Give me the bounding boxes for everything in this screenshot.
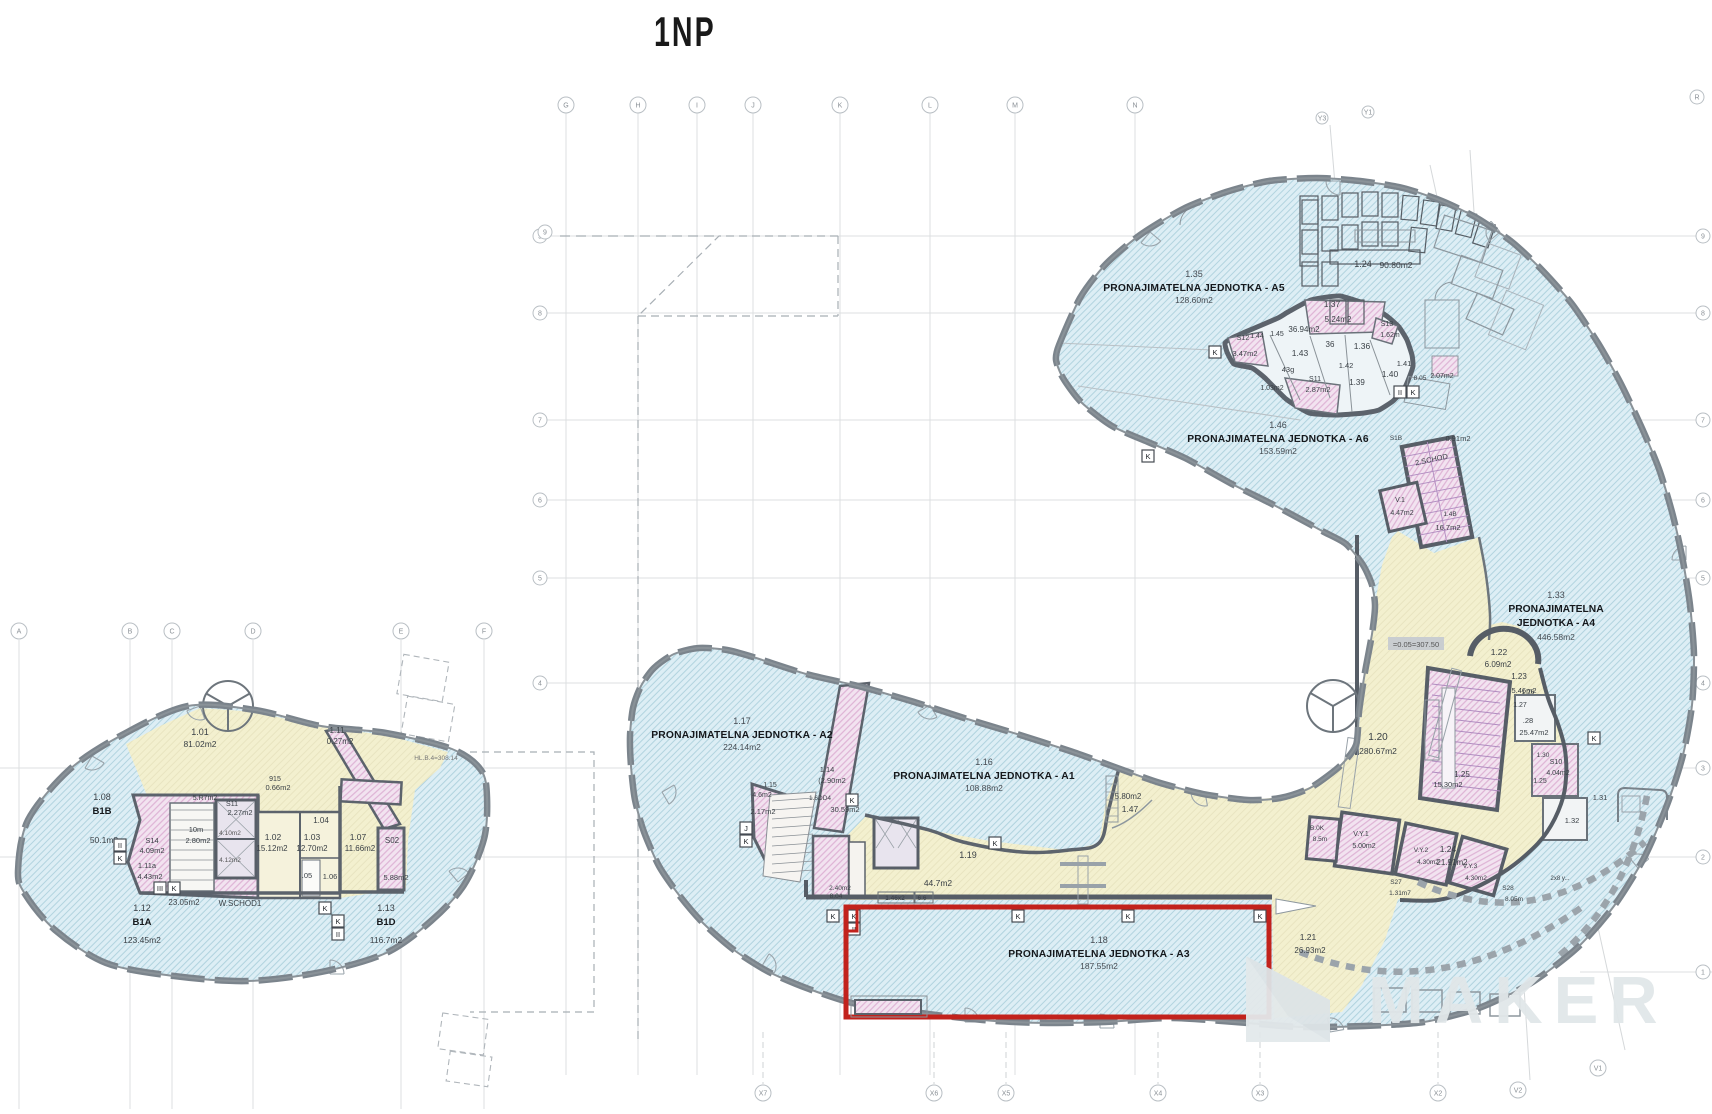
svg-text:1.25: 1.25	[1533, 778, 1547, 785]
svg-text:PRONAJIMATELNA JEDNOTKA - A5: PRONAJIMATELNA JEDNOTKA - A5	[1103, 283, 1285, 294]
svg-text:J: J	[744, 824, 748, 833]
svg-text:X4: X4	[1154, 1091, 1163, 1098]
svg-text:PRONAJIMATELNA JEDNOTKA - A1: PRONAJIMATELNA JEDNOTKA - A1	[893, 771, 1075, 782]
svg-text:4.30m2: 4.30m2	[1417, 859, 1439, 866]
svg-text:4.10m2: 4.10m2	[219, 830, 241, 837]
svg-text:1.06: 1.06	[323, 872, 338, 881]
svg-text:II: II	[336, 930, 340, 939]
svg-text:S28: S28	[1502, 885, 1514, 892]
svg-text:1.32: 1.32	[1565, 816, 1580, 825]
svg-text:5.88m2: 5.88m2	[383, 873, 408, 882]
svg-text:6.09m2: 6.09m2	[1485, 660, 1512, 669]
svg-text:1NP: 1NP	[654, 7, 716, 55]
svg-text:8: 8	[538, 311, 542, 318]
svg-text:1.22: 1.22	[1491, 647, 1508, 657]
svg-text:1: 1	[1701, 970, 1705, 977]
svg-text:1.62m: 1.62m	[1380, 332, 1400, 339]
svg-text:1.31: 1.31	[1593, 793, 1608, 802]
svg-text:.28: .28	[1523, 716, 1533, 725]
svg-text:1.08: 1.08	[93, 792, 111, 802]
svg-text:S13: S13	[1381, 321, 1394, 328]
svg-text:W.SCHOD1: W.SCHOD1	[219, 899, 262, 908]
svg-text:K: K	[1410, 388, 1415, 397]
svg-text:123.45m2: 123.45m2	[123, 935, 161, 945]
svg-text:Y3: Y3	[1318, 116, 1327, 123]
svg-text:1.23: 1.23	[1511, 672, 1527, 681]
svg-text:8: 8	[1701, 311, 1705, 318]
svg-text:1.31m7: 1.31m7	[1389, 890, 1411, 897]
svg-text:2.07m2: 2.07m2	[1430, 373, 1453, 380]
svg-text:1.20: 1.20	[1368, 732, 1388, 743]
svg-text:5.80m2: 5.80m2	[1115, 792, 1142, 801]
svg-text:1.07: 1.07	[350, 832, 367, 842]
svg-text:2.87m2: 2.87m2	[1305, 385, 1330, 394]
svg-text:1.46: 1.46	[1269, 420, 1287, 430]
svg-text:R: R	[1694, 95, 1699, 102]
svg-text:1.37: 1.37	[1324, 299, 1341, 309]
svg-text:1.02: 1.02	[265, 832, 282, 842]
svg-text:0.91m2: 0.91m2	[1445, 434, 1470, 443]
svg-text:4.43m2: 4.43m2	[137, 872, 162, 881]
svg-text:1.24: 1.24	[1354, 259, 1372, 269]
svg-text:280.67m2: 280.67m2	[1359, 746, 1397, 756]
svg-text:MAKER: MAKER	[1368, 963, 1669, 1038]
svg-text:11.66m2: 11.66m2	[345, 844, 376, 853]
svg-text:7: 7	[1701, 418, 1705, 425]
svg-text:0.66m2: 0.66m2	[265, 783, 290, 792]
svg-text:90.80m2: 90.80m2	[1379, 260, 1412, 270]
svg-text:II: II	[1398, 388, 1402, 397]
svg-text:23.05m2: 23.05m2	[168, 898, 200, 907]
svg-text:B1A: B1A	[132, 917, 151, 928]
svg-text:S12: S12	[1237, 335, 1250, 342]
svg-text:1.41: 1.41	[1397, 359, 1412, 368]
svg-text:E: E	[399, 629, 404, 636]
svg-text:1.35: 1.35	[1185, 269, 1203, 279]
svg-text:PRONAJIMATELNA JEDNOTKA - A2: PRONAJIMATELNA JEDNOTKA - A2	[651, 730, 833, 741]
svg-text:G: G	[563, 103, 568, 110]
svg-text:26.93m2: 26.93m2	[1294, 946, 1326, 955]
svg-text:I: I	[696, 103, 698, 110]
svg-text:K: K	[1145, 452, 1150, 461]
svg-text:S11: S11	[226, 801, 238, 808]
svg-text:A: A	[17, 629, 22, 636]
svg-text:5: 5	[1701, 576, 1705, 583]
svg-text:1.11: 1.11	[330, 726, 346, 735]
svg-text:1.46x2: 1.46x2	[885, 895, 905, 902]
svg-text:4.04m2: 4.04m2	[1546, 770, 1569, 777]
svg-text:6: 6	[538, 498, 542, 505]
svg-text:4.09m2: 4.09m2	[139, 846, 164, 855]
svg-text:D: D	[250, 629, 255, 636]
svg-text:K: K	[830, 912, 835, 921]
svg-text:X7: X7	[759, 1091, 768, 1098]
svg-text:1.03: 1.03	[304, 832, 321, 842]
svg-text:153.59m2: 153.59m2	[1259, 446, 1297, 456]
svg-text:108.88m2: 108.88m2	[965, 783, 1003, 793]
svg-text:187.55m2: 187.55m2	[1080, 961, 1118, 971]
svg-text:PRONAJIMATELNA JEDNOTKA - A3: PRONAJIMATELNA JEDNOTKA - A3	[1008, 949, 1190, 960]
svg-text:K: K	[335, 917, 340, 926]
svg-text:1.26: 1.26	[1522, 689, 1535, 696]
svg-text:2.80m2: 2.80m2	[185, 836, 210, 845]
svg-text:II: II	[118, 841, 122, 850]
svg-text:III: III	[157, 884, 163, 893]
svg-text:1.21: 1.21	[1300, 932, 1317, 942]
svg-text:0.27m2: 0.27m2	[327, 737, 354, 746]
svg-text:3.47m2: 3.47m2	[1232, 349, 1257, 358]
svg-text:1.13: 1.13	[377, 903, 395, 913]
svg-text:K: K	[1212, 348, 1217, 357]
svg-text:V1: V1	[1594, 1066, 1603, 1073]
svg-text:V.1: V.1	[1395, 497, 1405, 504]
svg-text:V.Y.3: V.Y.3	[1463, 863, 1478, 870]
svg-text:H: H	[635, 103, 640, 110]
svg-text:8.05: 8.05	[1414, 375, 1427, 382]
svg-text:2: 2	[1701, 855, 1705, 862]
svg-text:5.00m2: 5.00m2	[1352, 843, 1375, 850]
svg-text:6.6: 6.6	[917, 895, 926, 902]
svg-text:3: 3	[1701, 766, 1705, 773]
svg-text:B: B	[128, 629, 133, 636]
svg-text:1.45: 1.45	[1270, 331, 1284, 338]
svg-text:116.7m2: 116.7m2	[370, 935, 403, 945]
svg-text:4.12m2: 4.12m2	[219, 857, 241, 864]
svg-text:5.24m2: 5.24m2	[1325, 315, 1352, 324]
svg-text:V.Y.2: V.Y.2	[1414, 847, 1429, 854]
svg-text:1.14: 1.14	[820, 765, 835, 774]
svg-text:25.47m2: 25.47m2	[1519, 728, 1548, 737]
svg-text:1.43: 1.43	[1292, 348, 1309, 358]
svg-text:1.12: 1.12	[133, 903, 151, 913]
svg-text:V2: V2	[1514, 1088, 1523, 1095]
svg-text:8.04: 8.04	[830, 893, 843, 900]
svg-text:JEDNOTKA - A4: JEDNOTKA - A4	[1517, 618, 1595, 629]
svg-text:1.36: 1.36	[1354, 341, 1371, 351]
svg-text:F: F	[482, 629, 486, 636]
svg-text:1.42: 1.42	[1339, 361, 1354, 370]
svg-text:36: 36	[1326, 340, 1335, 349]
svg-text:44.7m2: 44.7m2	[924, 878, 953, 888]
svg-text:K: K	[838, 103, 843, 110]
svg-text:K: K	[849, 796, 854, 805]
svg-text:1.16: 1.16	[975, 757, 993, 767]
svg-text:1.33: 1.33	[1547, 590, 1565, 600]
svg-text:K: K	[322, 904, 327, 913]
svg-text:Y1: Y1	[1364, 110, 1373, 117]
svg-text:(2.90m2: (2.90m2	[818, 776, 846, 785]
svg-text:J: J	[751, 103, 755, 110]
svg-text:C: C	[169, 629, 174, 636]
svg-text:5.R7m2: 5.R7m2	[193, 795, 218, 802]
svg-text:K: K	[1591, 734, 1596, 743]
svg-text:K: K	[1257, 912, 1262, 921]
svg-text:1.03m2: 1.03m2	[1260, 385, 1283, 392]
svg-text:X2: X2	[1434, 1091, 1443, 1098]
svg-text:S11: S11	[1309, 376, 1321, 383]
svg-text:915: 915	[269, 776, 281, 783]
svg-text:4.47m2: 4.47m2	[1390, 510, 1413, 517]
svg-text:K: K	[1015, 912, 1020, 921]
svg-text:15.30m2: 15.30m2	[1433, 780, 1462, 789]
svg-text:1.04: 1.04	[313, 816, 329, 825]
svg-text:1.6DD4: 1.6DD4	[809, 795, 831, 802]
svg-text:1.44: 1.44	[1250, 333, 1264, 340]
svg-text:B1B: B1B	[92, 806, 111, 817]
svg-text:36.94m2: 36.94m2	[1288, 325, 1320, 334]
svg-text:446.58m2: 446.58m2	[1537, 632, 1575, 642]
svg-text:1.39: 1.39	[1349, 378, 1365, 387]
svg-text:1.4B: 1.4B	[1443, 511, 1456, 518]
svg-text:PRONAJIMATELNA JEDNOTKA - A6: PRONAJIMATELNA JEDNOTKA - A6	[1187, 434, 1369, 445]
svg-text:2x8 y...: 2x8 y...	[1551, 876, 1570, 882]
svg-text:1.17: 1.17	[733, 716, 751, 726]
svg-text:8.5m: 8.5m	[1313, 836, 1327, 843]
svg-text:9: 9	[543, 230, 547, 237]
svg-text:S1B: S1B	[1390, 435, 1402, 442]
svg-text:7: 7	[538, 418, 542, 425]
svg-text:S02: S02	[385, 836, 400, 845]
svg-text:X5: X5	[1002, 1091, 1011, 1098]
svg-text:V.Y.1: V.Y.1	[1353, 831, 1369, 838]
svg-text:1.15: 1.15	[763, 782, 777, 789]
svg-text:1.30: 1.30	[1537, 752, 1550, 759]
svg-text:8.05m: 8.05m	[1505, 896, 1523, 903]
svg-text:2.40m2: 2.40m2	[829, 885, 851, 892]
svg-text:X3: X3	[1256, 1091, 1265, 1098]
svg-text:1.11a: 1.11a	[138, 861, 157, 870]
svg-text:81.02m2: 81.02m2	[183, 739, 216, 749]
svg-text:1.01: 1.01	[191, 727, 209, 737]
svg-text:1.19: 1.19	[959, 850, 977, 860]
svg-text:L: L	[928, 103, 932, 110]
svg-text:12.70m2: 12.70m2	[296, 844, 328, 853]
svg-text:S14: S14	[145, 836, 158, 845]
svg-text:16.7m2: 16.7m2	[1435, 523, 1460, 532]
svg-text:4.30m2: 4.30m2	[1465, 875, 1487, 882]
svg-text:.05: .05	[302, 871, 312, 880]
svg-text:=0.05=307.50: =0.05=307.50	[1393, 640, 1439, 649]
svg-text:1.40: 1.40	[1382, 369, 1399, 379]
svg-text:9: 9	[1701, 234, 1705, 241]
svg-text:2.27m2: 2.27m2	[227, 808, 252, 817]
svg-text:5: 5	[538, 576, 542, 583]
svg-text:2.17m2: 2.17m2	[750, 807, 775, 816]
svg-text:4: 4	[1701, 681, 1705, 688]
svg-text:43g: 43g	[1282, 365, 1295, 374]
svg-text:4.6m2: 4.6m2	[752, 792, 772, 799]
svg-text:10m: 10m	[189, 825, 204, 834]
svg-text:K: K	[1125, 912, 1130, 921]
svg-text:S10: S10	[1550, 759, 1563, 766]
svg-text:15.12m2: 15.12m2	[256, 844, 288, 853]
svg-text:PRONAJIMATELNA: PRONAJIMATELNA	[1508, 604, 1604, 615]
svg-text:B.0K: B.0K	[1310, 825, 1325, 832]
svg-text:6: 6	[1701, 498, 1705, 505]
svg-text:K: K	[992, 839, 997, 848]
svg-text:4: 4	[538, 681, 542, 688]
svg-text:N: N	[1132, 103, 1137, 110]
svg-text:B1D: B1D	[376, 917, 395, 928]
svg-text:1.18: 1.18	[1090, 935, 1108, 945]
svg-text:1.24: 1.24	[1440, 844, 1457, 854]
svg-text:1.47: 1.47	[1122, 804, 1139, 814]
svg-text:224.14m2: 224.14m2	[723, 742, 761, 752]
svg-text:S27: S27	[1390, 879, 1402, 886]
svg-text:M: M	[1012, 103, 1018, 110]
svg-text:K: K	[171, 884, 176, 893]
svg-text:1.25: 1.25	[1454, 770, 1470, 779]
svg-text:K: K	[743, 837, 748, 846]
svg-text:128.60m2: 128.60m2	[1175, 295, 1213, 305]
svg-text:1.27: 1.27	[1513, 702, 1527, 709]
svg-text:K: K	[117, 854, 122, 863]
svg-text:X6: X6	[930, 1091, 939, 1098]
svg-text:HL.B.4=308.14: HL.B.4=308.14	[414, 755, 458, 762]
